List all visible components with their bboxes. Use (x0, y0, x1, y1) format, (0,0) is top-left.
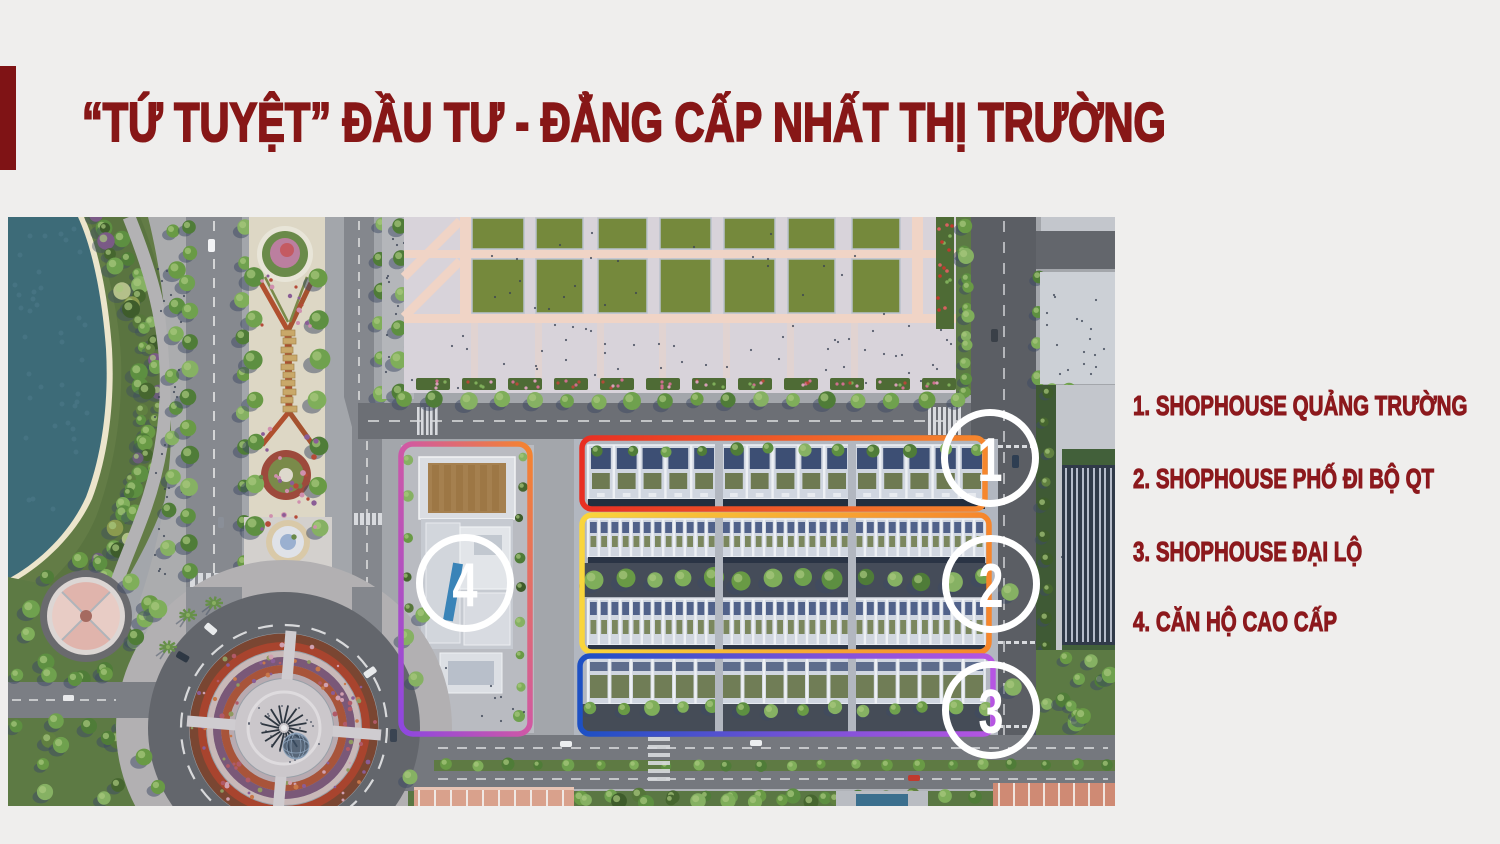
svg-text:4: 4 (452, 550, 477, 620)
svg-text:1: 1 (977, 425, 1002, 495)
svg-text:2: 2 (978, 551, 1003, 621)
svg-text:3: 3 (978, 677, 1003, 747)
